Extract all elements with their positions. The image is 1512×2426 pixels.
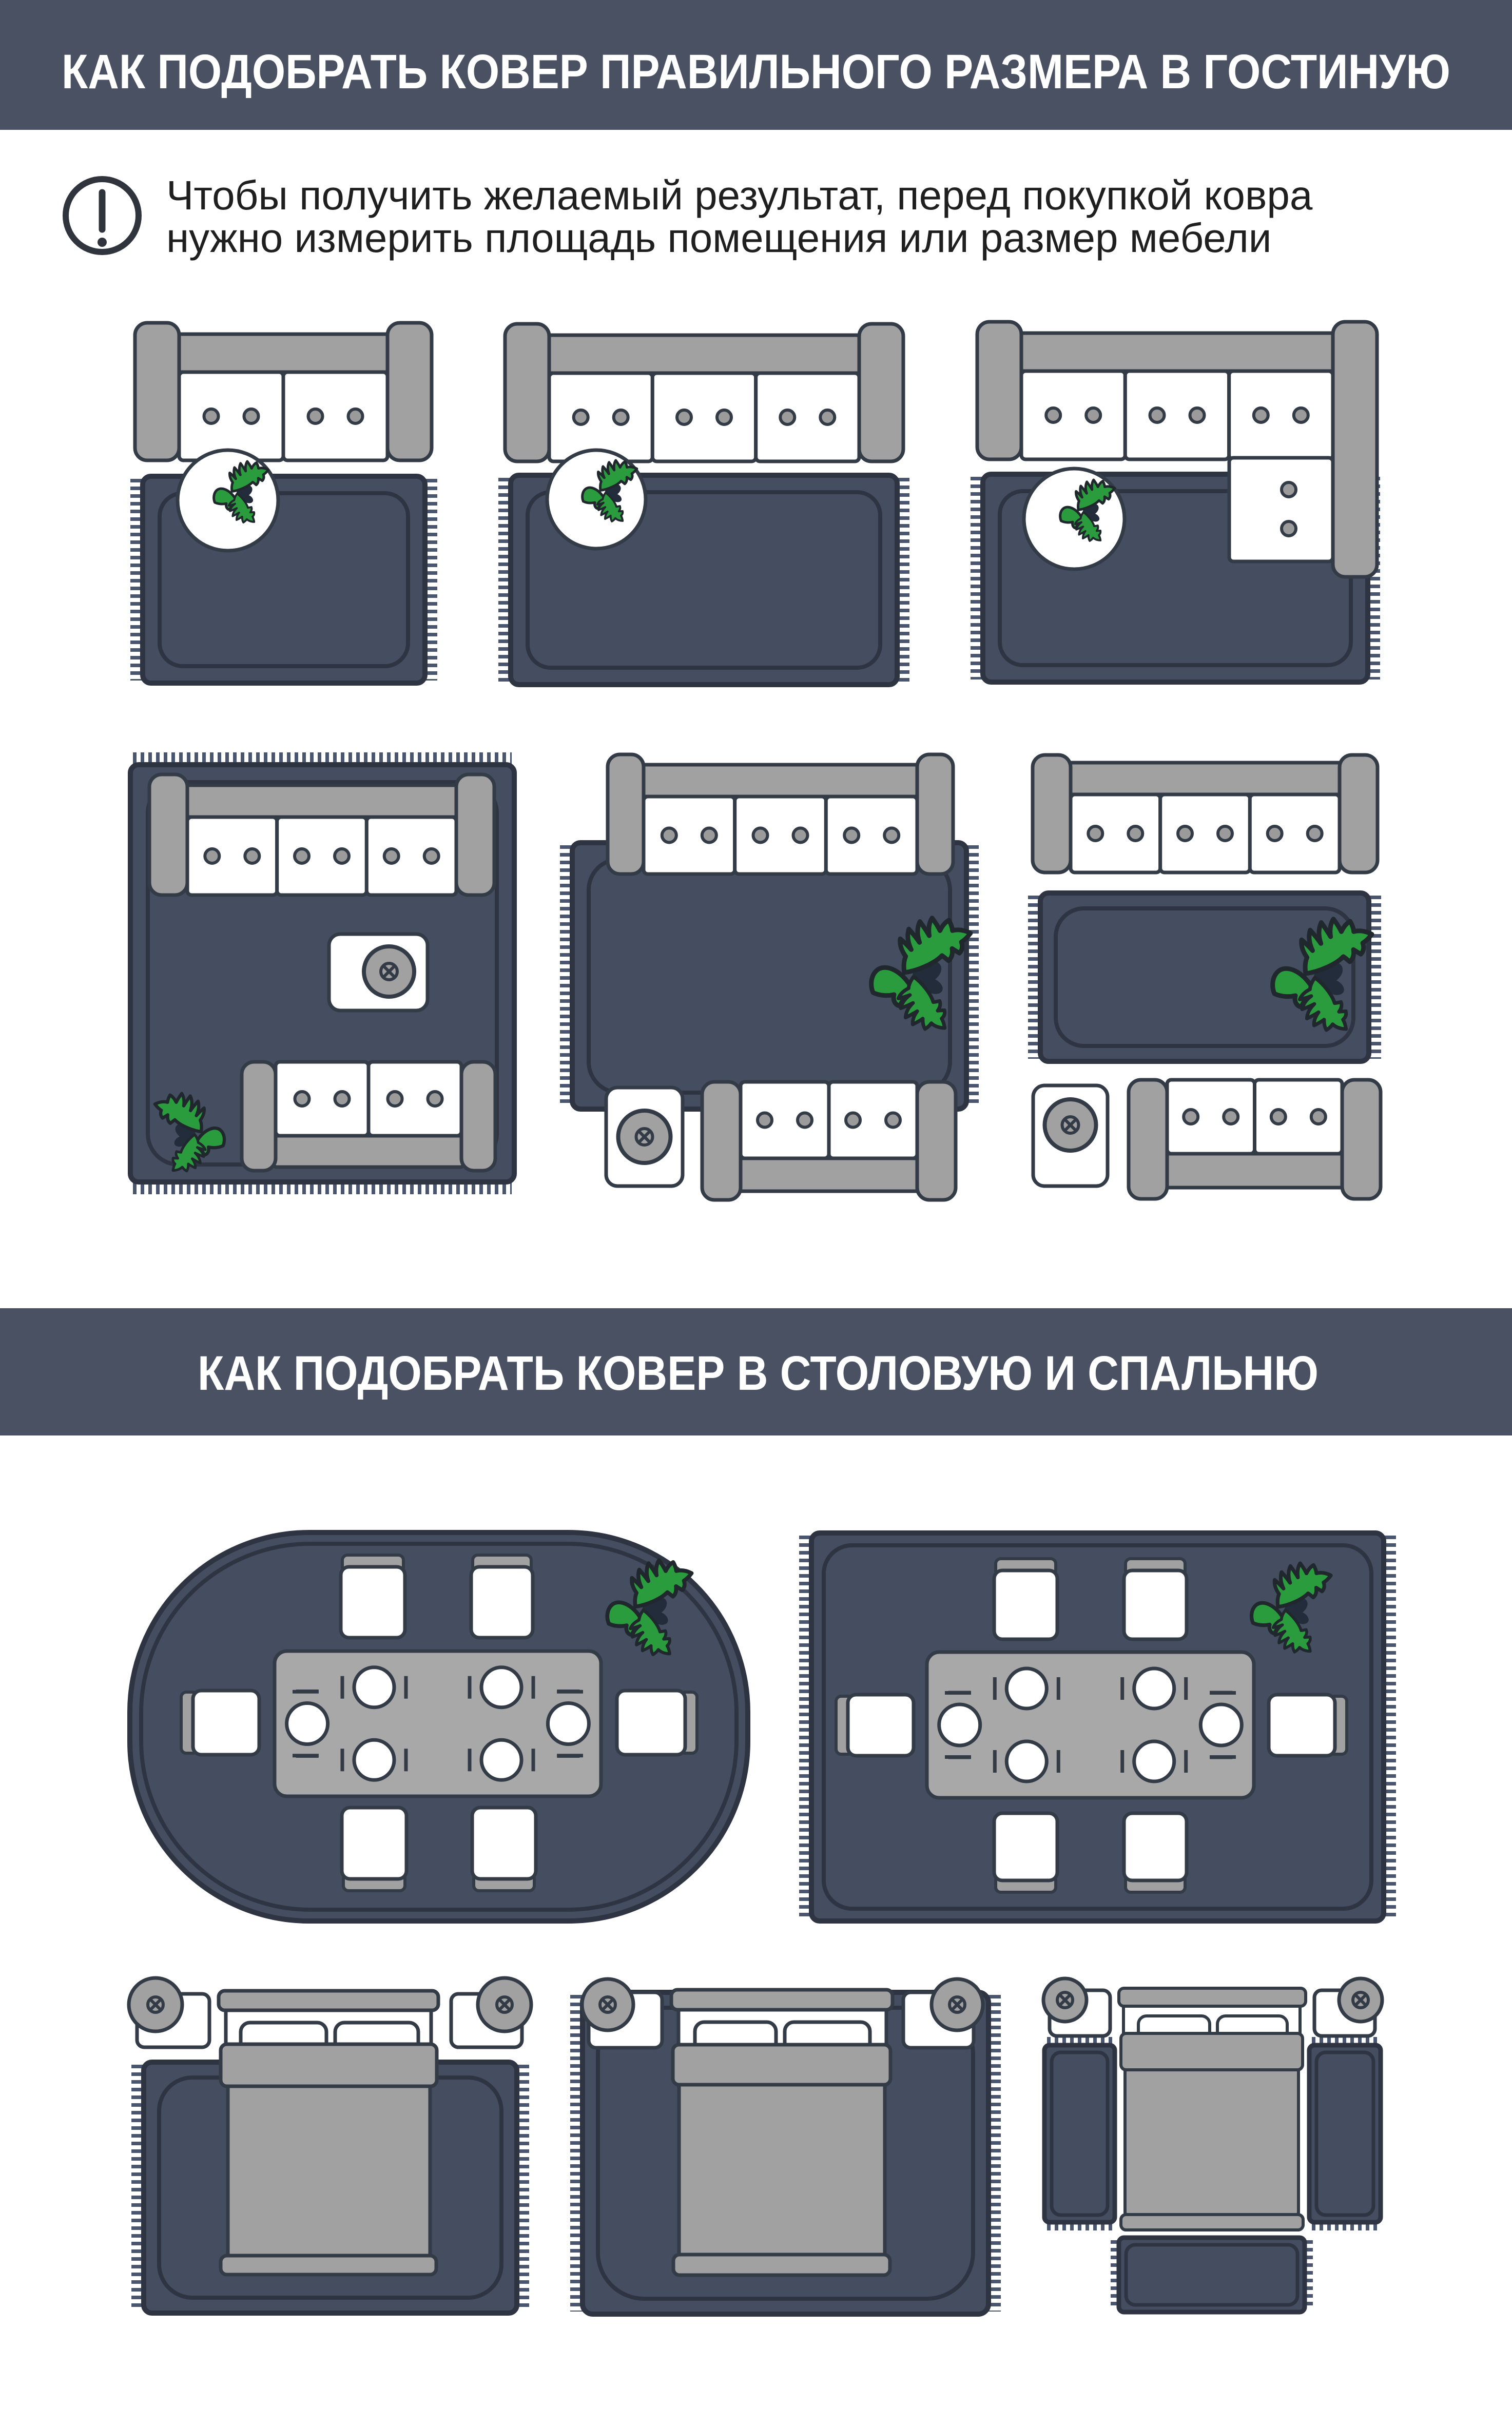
svg-text:КАК ПОДОБРАТЬ КОВЕР ПРАВИЛЬНОГ: КАК ПОДОБРАТЬ КОВЕР ПРАВИЛЬНОГО РАЗМЕРА …: [62, 45, 1450, 99]
svg-text:КАК ПОДОБРАТЬ КОВЕР В СТОЛОВУЮ: КАК ПОДОБРАТЬ КОВЕР В СТОЛОВУЮ И СПАЛЬНЮ: [198, 1346, 1319, 1401]
svg-text:Чтобы получить желаемый резуль: Чтобы получить желаемый результат, перед…: [166, 172, 1313, 218]
svg-text:нужно измерить площадь помещен: нужно измерить площадь помещения или раз…: [166, 215, 1271, 261]
